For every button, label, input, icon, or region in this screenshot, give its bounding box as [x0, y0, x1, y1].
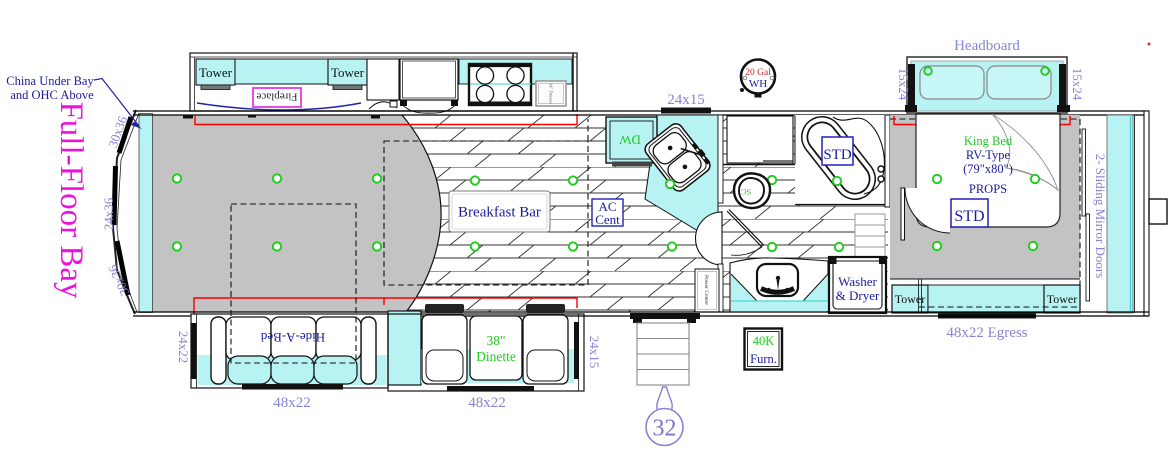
svg-text:24x15: 24x15 [667, 92, 705, 108]
svg-text:Headboard: Headboard [954, 38, 1020, 54]
svg-text:Furn.: Furn. [750, 352, 777, 366]
svg-text:King Bed: King Bed [964, 134, 1013, 148]
svg-text:Cent: Cent [595, 212, 620, 227]
svg-text:Dinette: Dinette [476, 349, 516, 364]
svg-text:20 Gal: 20 Gal [745, 68, 771, 78]
svg-text:15x24: 15x24 [896, 68, 911, 101]
svg-text:Tower: Tower [1047, 292, 1077, 306]
svg-text:24x36: 24x36 [101, 197, 116, 230]
svg-text:Fireplace: Fireplace [256, 91, 297, 103]
svg-text:48x22: 48x22 [468, 395, 506, 411]
svg-text:24x22: 24x22 [176, 331, 191, 364]
svg-text:(79"x80"): (79"x80") [963, 162, 1013, 176]
svg-text:38": 38" [486, 333, 505, 348]
svg-text:STD: STD [954, 208, 984, 225]
svg-text:Tower: Tower [199, 65, 233, 80]
svg-text:15x24: 15x24 [1070, 68, 1085, 101]
svg-text:SC: SC [740, 187, 751, 197]
svg-text:DW: DW [618, 133, 640, 148]
svg-text:Breakfast Bar: Breakfast Bar [458, 205, 541, 221]
svg-text:China Under Bay: China Under Bay [6, 74, 94, 88]
svg-text:Tower: Tower [895, 292, 925, 306]
svg-text:WH: WH [749, 78, 767, 90]
svg-text:RV-Type: RV-Type [966, 148, 1011, 162]
svg-text:32: 32 [653, 416, 677, 442]
svg-text:40K: 40K [753, 334, 775, 348]
svg-text:Tower: Tower [331, 65, 365, 80]
svg-text:STD: STD [823, 147, 852, 163]
svg-text:48x22 Egress: 48x22 Egress [946, 325, 1027, 341]
svg-text:PROPS: PROPS [969, 182, 1007, 196]
svg-text:14" Drawer: 14" Drawer [549, 83, 554, 104]
svg-text:Power Center: Power Center [703, 275, 709, 305]
svg-text:48x22: 48x22 [273, 395, 311, 411]
svg-text:and OHC Above: and OHC Above [10, 88, 94, 102]
svg-text:Full-Floor Bay: Full-Floor Bay [53, 101, 89, 299]
svg-text:24x15: 24x15 [587, 336, 602, 369]
svg-text:& Dryer: & Dryer [836, 288, 880, 303]
svg-text:Washer: Washer [838, 274, 877, 289]
svg-text:Hide-A-Bed: Hide-A-Bed [260, 330, 325, 345]
svg-text:2- Sliding Mirror Doors: 2- Sliding Mirror Doors [1093, 154, 1108, 279]
